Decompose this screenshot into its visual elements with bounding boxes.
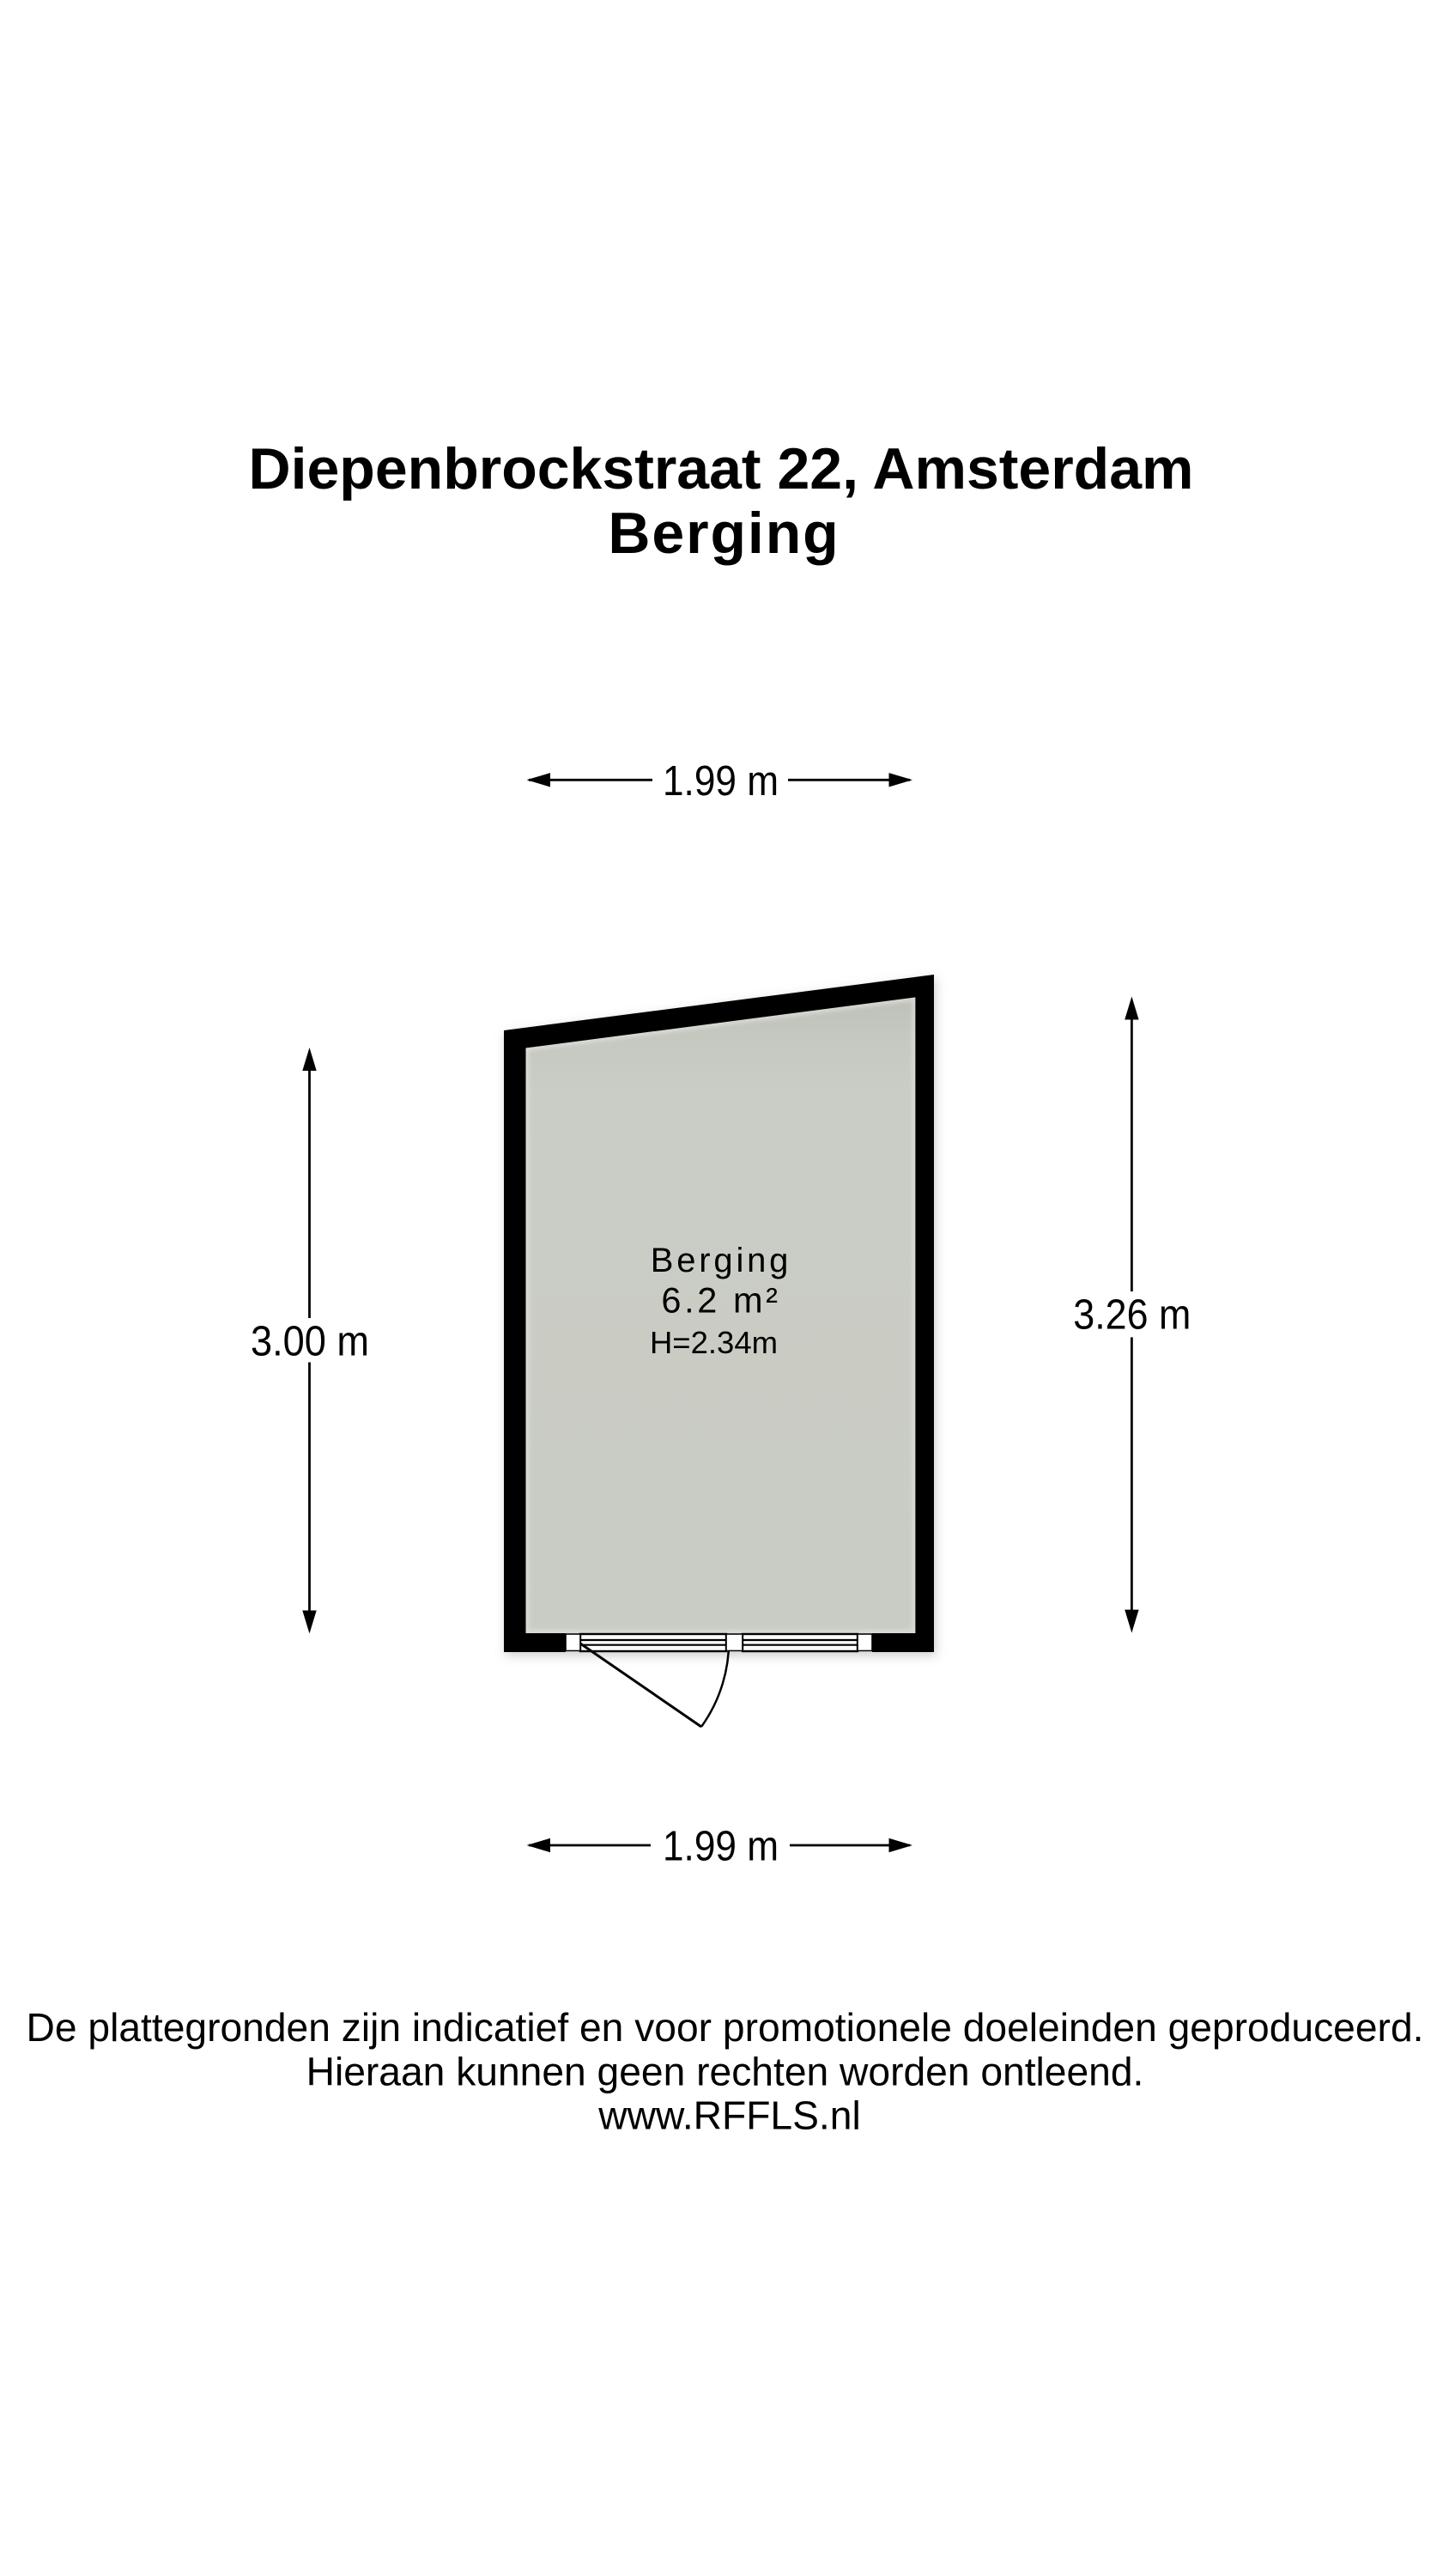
svg-text:3.26 m: 3.26 m [1073, 1291, 1191, 1339]
svg-text:www.RFFLS.nl: www.RFFLS.nl [597, 2093, 860, 2138]
svg-text:Hieraan kunnen geen rechten wo: Hieraan kunnen geen rechten worden ontle… [306, 2050, 1144, 2094]
svg-text:Diepenbrockstraat 22, Amsterda: Diepenbrockstraat 22, Amsterdam [248, 436, 1193, 501]
svg-text:3.00 m: 3.00 m [251, 1318, 369, 1365]
svg-text:6.2 m²: 6.2 m² [661, 1280, 780, 1321]
svg-text:Berging: Berging [651, 1242, 791, 1279]
svg-text:Berging: Berging [608, 501, 840, 566]
svg-text:H=2.34m: H=2.34m [650, 1325, 778, 1360]
svg-text:De plattegronden zijn indicati: De plattegronden zijn indicatief en voor… [27, 2005, 1424, 2050]
svg-text:1.99 m: 1.99 m [663, 1823, 779, 1870]
svg-text:1.99 m: 1.99 m [663, 757, 779, 805]
